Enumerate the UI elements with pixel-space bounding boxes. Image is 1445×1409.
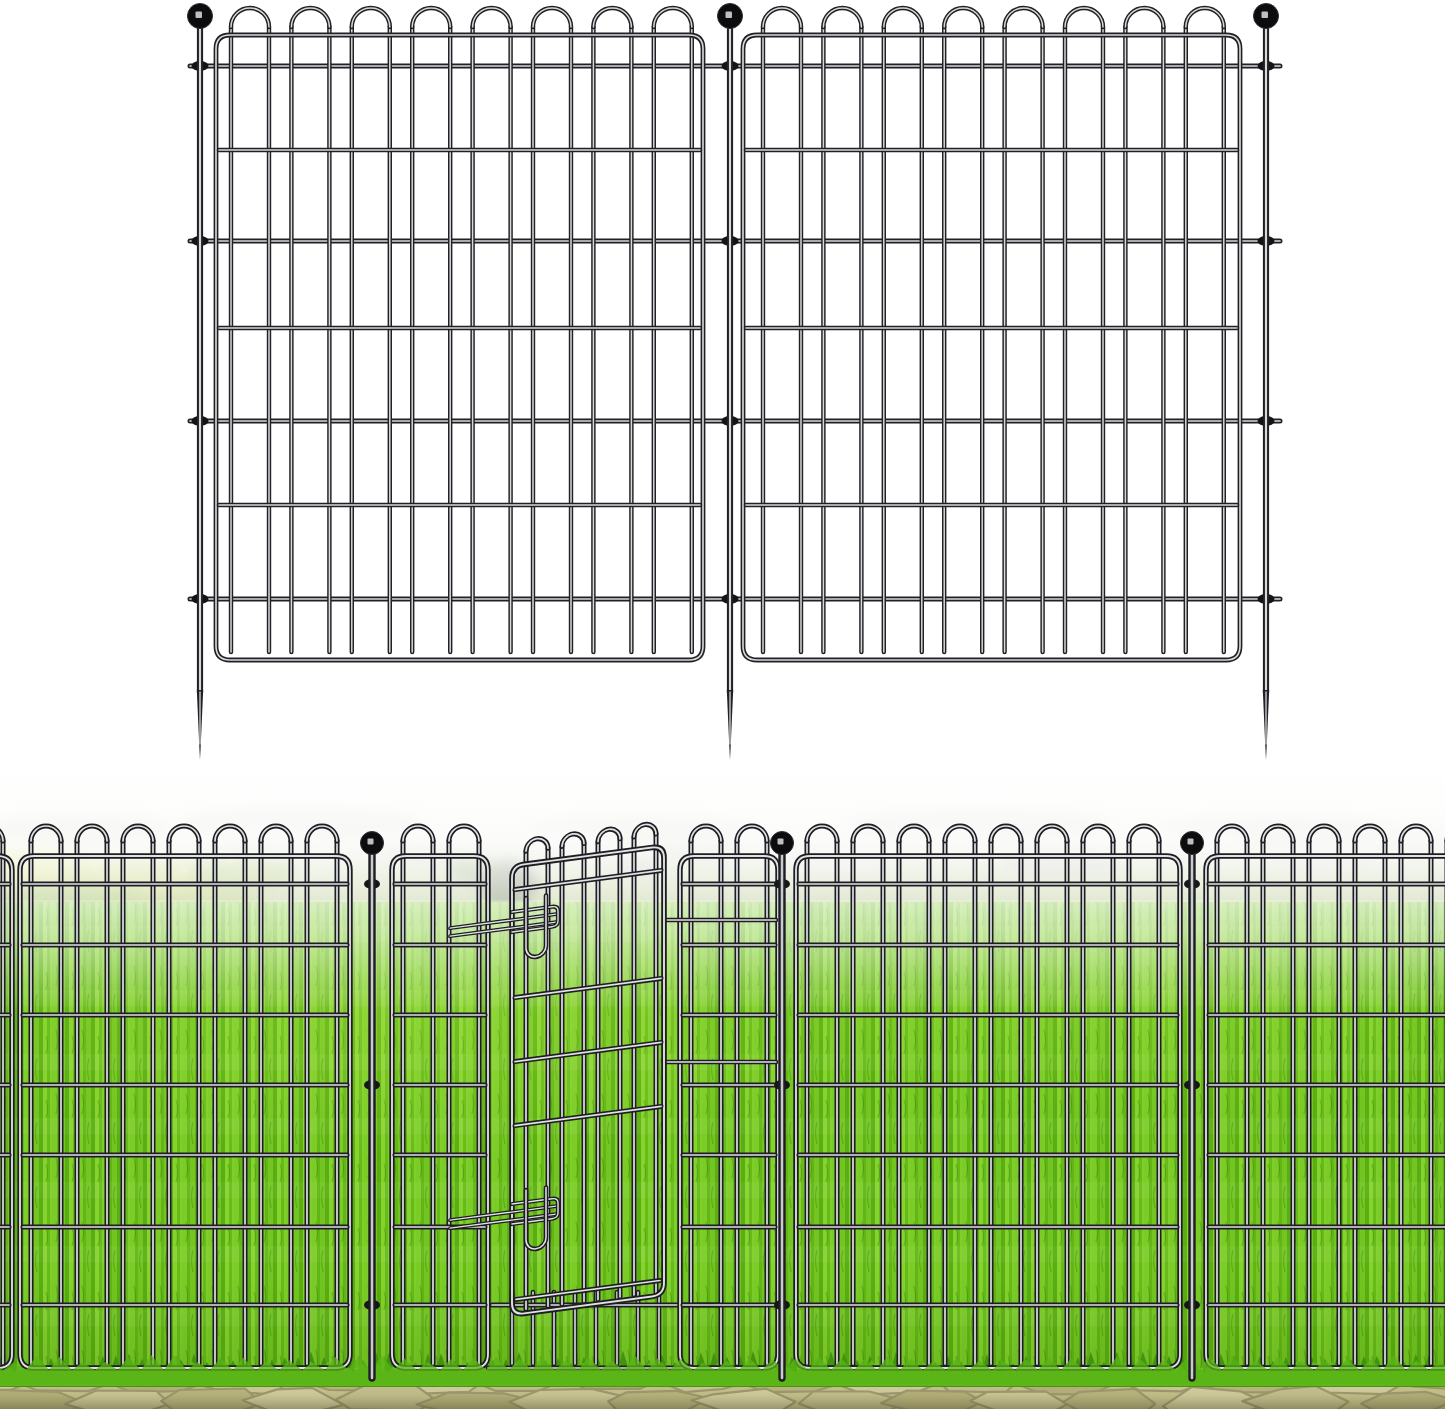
- installed-scene: [0, 752, 1445, 1409]
- ground-stake: [718, 4, 743, 761]
- fence-panel: [743, 8, 1240, 660]
- product-illustration: [188, 4, 1281, 761]
- ground-stake: [188, 4, 213, 761]
- garden-fence-scene: [0, 0, 1445, 1409]
- ground-stake: [1254, 4, 1279, 761]
- fence-panel: [216, 8, 703, 660]
- product-image: [0, 0, 1445, 1409]
